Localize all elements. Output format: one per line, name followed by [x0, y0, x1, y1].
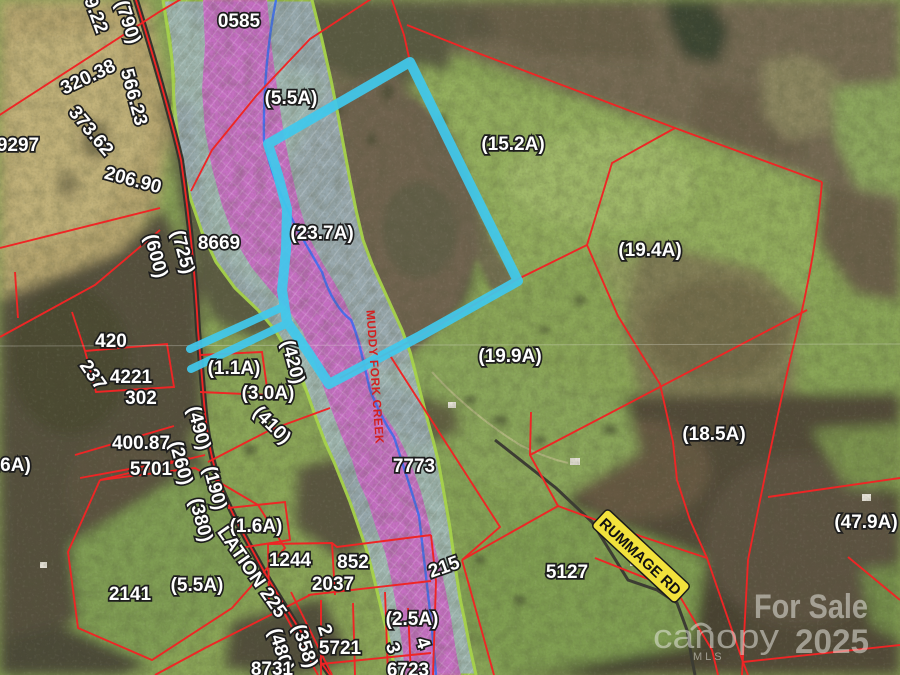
svg-text:4221: 4221 — [110, 367, 153, 388]
svg-text:(15.2A): (15.2A) — [481, 134, 544, 155]
svg-text:1244: 1244 — [269, 550, 312, 571]
svg-text:8731: 8731 — [251, 659, 294, 675]
svg-text:2141: 2141 — [109, 584, 152, 605]
svg-text:(23.7A): (23.7A) — [290, 223, 353, 244]
svg-text:5701: 5701 — [130, 459, 173, 480]
svg-text:(2.5A): (2.5A) — [386, 609, 439, 630]
svg-text:7773: 7773 — [393, 456, 435, 477]
svg-text:852: 852 — [337, 552, 369, 573]
svg-text:(5.5A): (5.5A) — [265, 88, 318, 109]
svg-text:0585: 0585 — [218, 11, 261, 32]
svg-text:(18.5A): (18.5A) — [682, 424, 745, 445]
svg-text:420: 420 — [95, 331, 127, 352]
svg-text:9297: 9297 — [0, 135, 39, 156]
svg-text:(47.9A): (47.9A) — [834, 512, 897, 533]
svg-text:MLS: MLS — [693, 651, 725, 663]
svg-text:5127: 5127 — [546, 562, 588, 583]
svg-text:(19.4A): (19.4A) — [618, 240, 681, 261]
svg-text:(1.1A): (1.1A) — [208, 358, 261, 379]
svg-text:302: 302 — [125, 388, 157, 409]
svg-text:5721: 5721 — [319, 638, 362, 659]
svg-text:400.87: 400.87 — [112, 433, 170, 454]
svg-text:(9.6A): (9.6A) — [0, 455, 31, 476]
svg-text:2025: 2025 — [795, 623, 869, 661]
svg-text:6723: 6723 — [387, 660, 429, 675]
svg-text:(19.9A): (19.9A) — [478, 346, 541, 367]
svg-text:8669: 8669 — [198, 233, 240, 254]
svg-text:2037: 2037 — [312, 574, 354, 595]
svg-text:(3.0A): (3.0A) — [242, 383, 295, 404]
svg-text:(5.5A): (5.5A) — [171, 575, 224, 596]
